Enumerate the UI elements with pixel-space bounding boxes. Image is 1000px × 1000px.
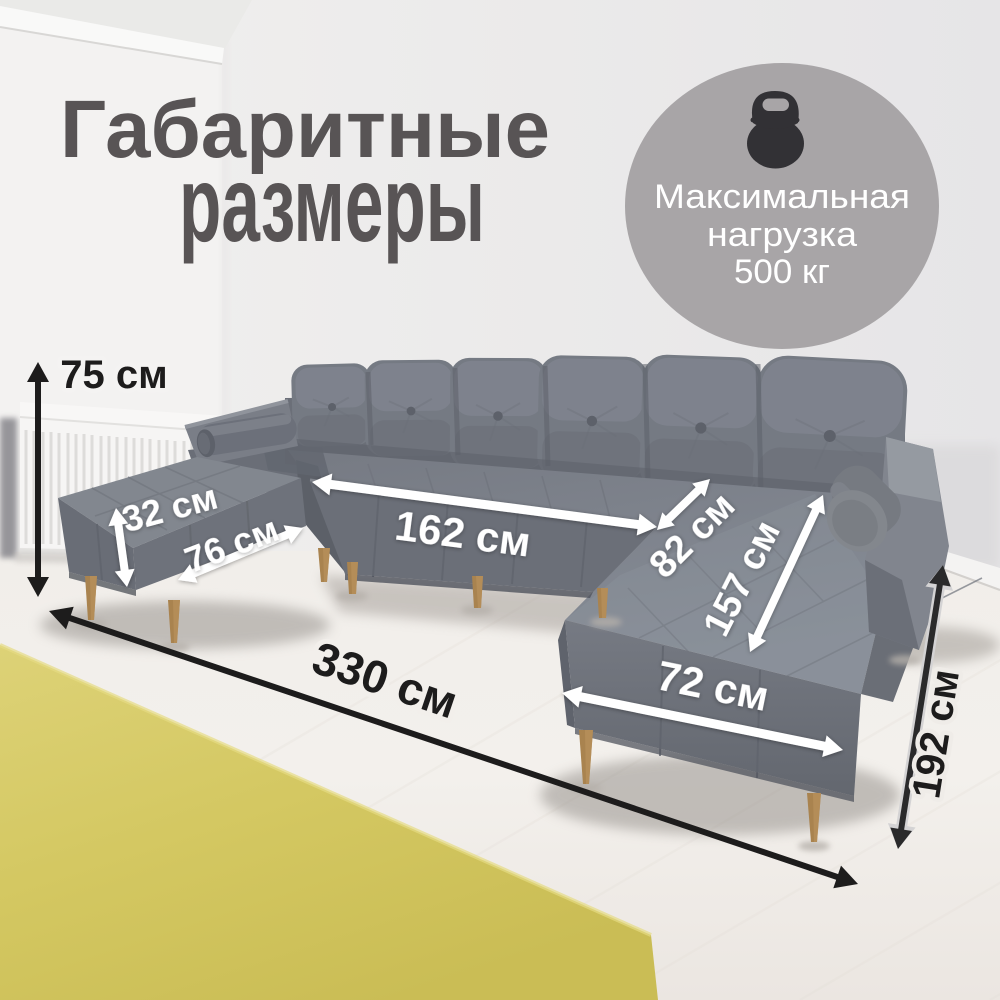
svg-text:75 см: 75 см [60,353,167,397]
svg-text:500 кг: 500 кг [734,253,830,291]
svg-text:Максимальная: Максимальная [654,178,910,216]
svg-text:размеры: размеры [179,143,485,264]
svg-text:нагрузка: нагрузка [707,216,857,254]
